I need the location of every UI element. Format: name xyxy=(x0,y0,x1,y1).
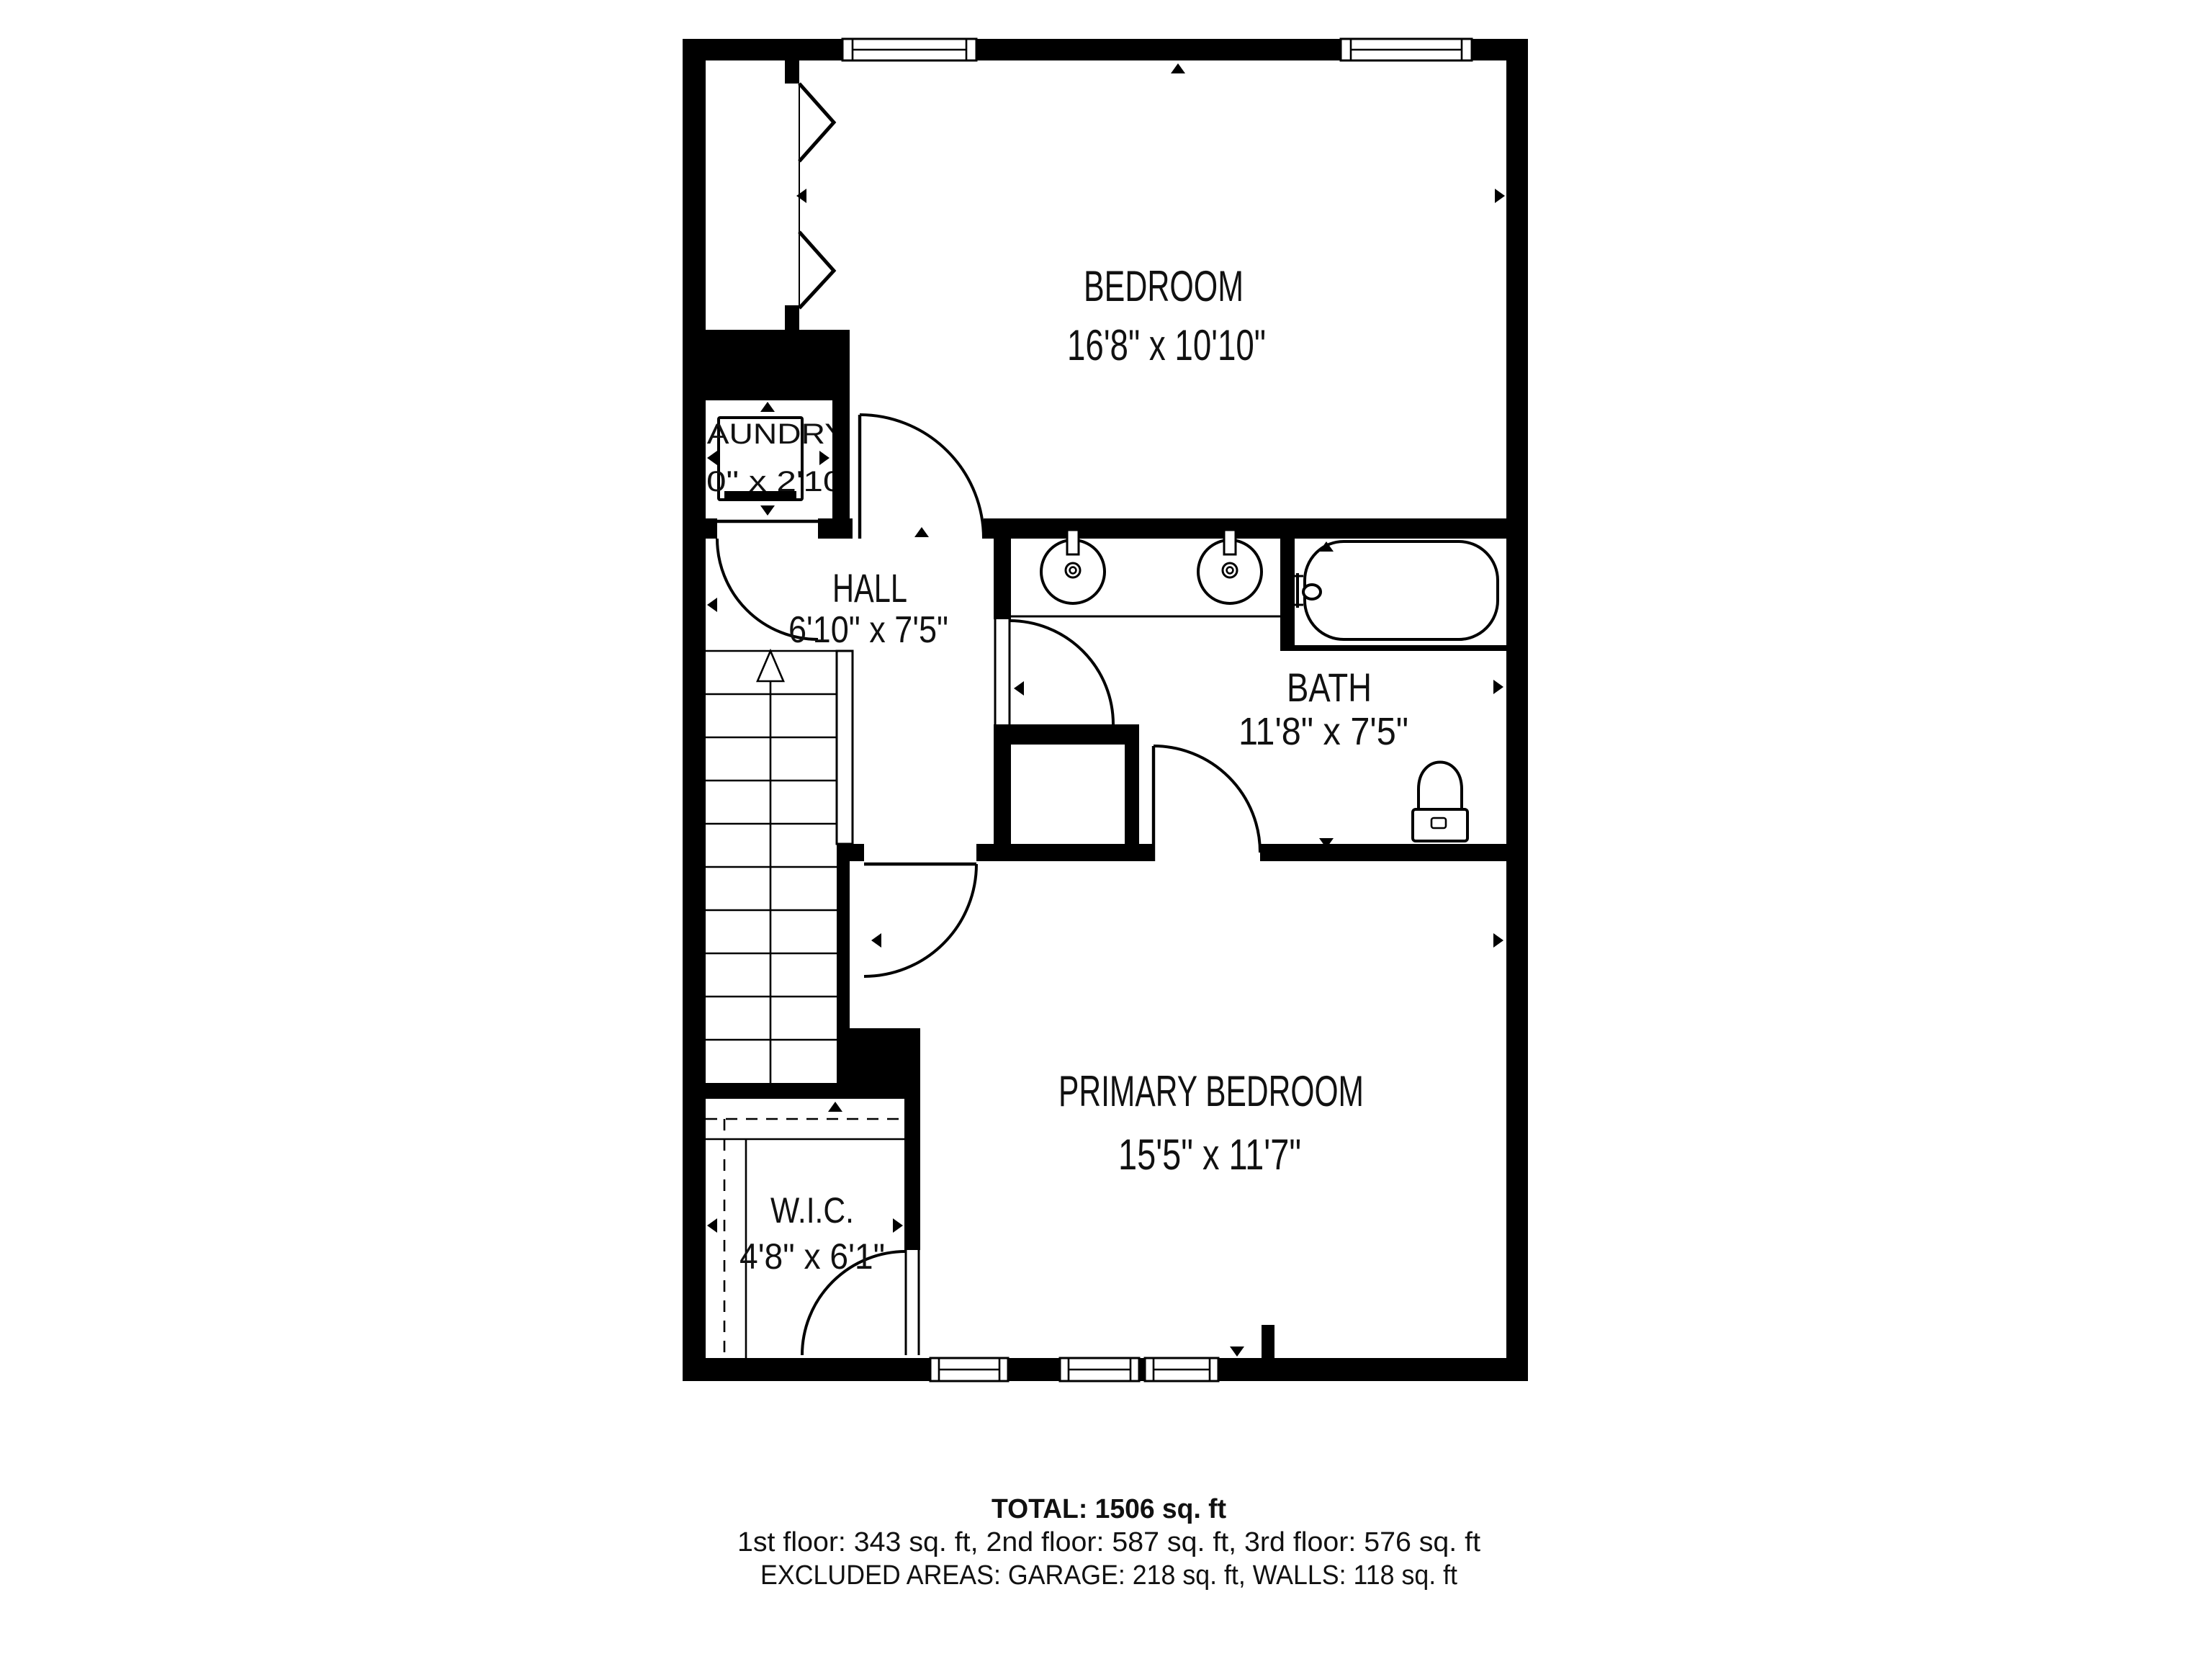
excluded-areas-text: EXCLUDED AREAS: GARAGE: 218 sq. ft, WALL… xyxy=(760,1560,1457,1591)
wall-nook-stub-top xyxy=(785,59,799,84)
arrow-up-icon xyxy=(760,402,775,412)
primary-bedroom-dimensions: 15'5" x 11'7" xyxy=(1118,1130,1301,1179)
floor-areas-text: 1st floor: 343 sq. ft, 2nd floor: 587 sq… xyxy=(737,1527,1480,1557)
stairs-up-arrow-icon xyxy=(757,651,783,681)
hall-dimensions: 6'10" x 7'5" xyxy=(788,609,948,651)
arrow-right-icon xyxy=(893,1218,903,1233)
floor-plan-canvas: BEDROOM 16'8" x 10'10" LAUNDRY 3'0" x 2'… xyxy=(0,0,2212,1659)
wall-hall-top-1 xyxy=(683,518,717,539)
bath-label: BATH xyxy=(1287,665,1372,710)
bath-dimensions: 11'8" x 7'5" xyxy=(1238,710,1408,753)
wall-stair-bottom xyxy=(683,1083,920,1099)
primary-bedroom-label: PRIMARY BEDROOM xyxy=(1058,1067,1364,1115)
area-summary: TOTAL: 1506 sq. ft 1st floor: 343 sq. ft… xyxy=(737,1494,1480,1591)
wic-dimensions: 4'8" x 6'1" xyxy=(739,1236,885,1277)
primary-bedroom-door xyxy=(864,864,976,976)
window-top-2 xyxy=(1341,39,1472,60)
arrow-left-icon xyxy=(707,598,717,612)
wall-bottom-stub xyxy=(1262,1325,1274,1358)
window-bottom-3 xyxy=(1145,1358,1218,1381)
doorway-bath xyxy=(1154,844,1260,861)
wall-bedroom-bottom xyxy=(984,518,1506,539)
vanity-door xyxy=(995,619,1113,724)
wic-label: W.I.C. xyxy=(770,1190,854,1231)
arrow-right-icon xyxy=(1495,189,1505,203)
window-bottom-2 xyxy=(1060,1358,1139,1381)
laundry-label: LAUNDRY xyxy=(688,418,847,450)
wall-top-left xyxy=(683,39,842,60)
arrow-up-icon xyxy=(1171,63,1185,73)
wall-left xyxy=(683,60,706,1358)
stair-railing xyxy=(837,651,853,844)
wall-tub-bottom-line xyxy=(1295,645,1506,651)
laundry-dimensions: 3'0" x 2'10" xyxy=(680,466,855,498)
arrow-left-icon xyxy=(796,189,806,203)
stairs xyxy=(706,651,853,1083)
arrow-left-icon xyxy=(871,933,881,948)
hall-label: HALL xyxy=(832,565,907,611)
bathtub-icon xyxy=(1292,541,1498,639)
arrow-right-icon xyxy=(1493,933,1503,948)
sink-icon xyxy=(1198,530,1262,603)
total-area-text: TOTAL: 1506 sq. ft xyxy=(992,1494,1226,1524)
arrow-down-icon xyxy=(760,505,775,516)
wall-vanity-door-top xyxy=(994,539,1011,619)
arrow-left-icon xyxy=(707,1218,717,1233)
sink-icon xyxy=(1041,530,1105,603)
wall-nook-stub-bottom xyxy=(785,305,799,330)
bedroom-label: BEDROOM xyxy=(1084,262,1244,310)
arrow-down-icon xyxy=(1230,1346,1244,1357)
wall-bottom-4 xyxy=(1218,1358,1528,1381)
arrow-right-icon xyxy=(819,451,829,465)
wall-junction-middle xyxy=(976,844,1154,861)
toilet-icon xyxy=(1413,763,1467,842)
arrow-right-icon xyxy=(1493,680,1503,694)
doorway-vanity xyxy=(994,619,1011,724)
wall-tub-divider xyxy=(1280,518,1295,651)
window-top-1 xyxy=(842,39,976,60)
wall-niche-top xyxy=(994,724,1139,745)
arrow-left-icon xyxy=(707,451,717,465)
window-bottom-1 xyxy=(930,1358,1008,1381)
doorway-primary-bedroom xyxy=(864,844,976,861)
wall-top-middle xyxy=(976,39,1341,60)
wall-right xyxy=(1506,39,1528,1381)
wall-above-laundry xyxy=(683,330,850,400)
bedroom-dimensions: 16'8" x 10'10" xyxy=(1067,321,1266,369)
floor-plan: BEDROOM 16'8" x 10'10" LAUNDRY 3'0" x 2'… xyxy=(0,0,2212,1659)
wall-laundry-right xyxy=(832,400,850,518)
wall-niche-left xyxy=(994,724,1011,861)
wall-wic-right xyxy=(904,1099,920,1250)
arrow-left-icon xyxy=(1014,681,1024,696)
zigzag-icon xyxy=(799,84,834,161)
wall-bottom-1 xyxy=(683,1358,930,1381)
wall-niche-right xyxy=(1125,724,1139,861)
wall-bottom-2 xyxy=(1008,1358,1060,1381)
zigzag-icon xyxy=(799,232,834,308)
wall-junction-right xyxy=(1260,844,1506,861)
arrow-up-icon xyxy=(828,1102,842,1112)
wall-hall-top-2 xyxy=(818,518,853,539)
